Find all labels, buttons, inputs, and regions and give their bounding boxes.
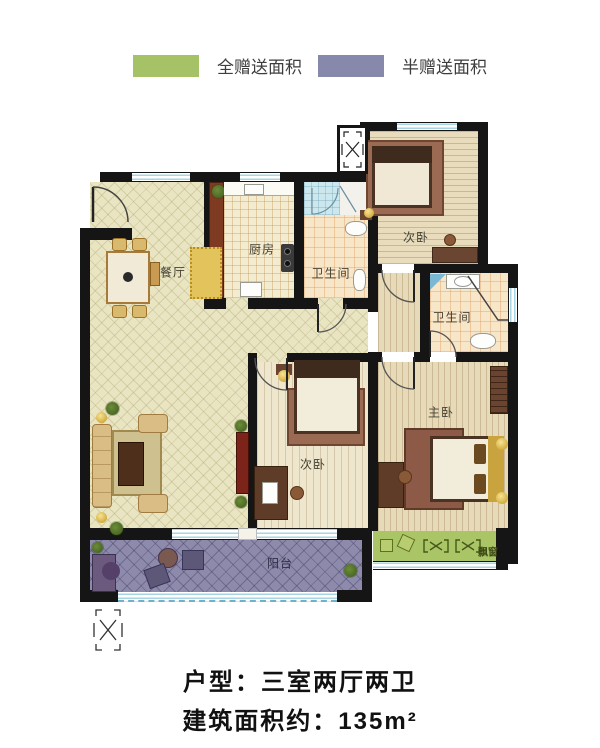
plant [344,564,357,577]
bay-pillow [380,539,393,552]
bedroom-top-desk [432,247,478,263]
bedroom-top-bed-headboard [372,146,432,163]
room-label-balcony: 阳台 [267,555,293,572]
master-pillow [474,474,486,494]
wall-bedroom-top-bottom-a [368,264,382,273]
legend-label-half-gift: 半赠送面积 [402,53,487,78]
window-bedroom-mid-balcony [257,528,337,540]
living-bookshelf [236,432,249,494]
window-dining [132,172,190,182]
wall-bedroom-top-right [478,122,488,273]
master-chair [398,470,412,484]
bay-window-glazing [373,561,498,570]
wall-master-top-b [414,352,430,362]
legend-swatch-purple [318,55,384,77]
wall-kitchen-right [294,182,304,309]
dining-chair [132,238,147,251]
bath2-toilet [470,333,496,349]
living-lamp [96,512,107,523]
bath1-shower-floor [304,182,340,215]
wall-balcony-corner-right [337,590,372,602]
balcony-floor [90,540,362,592]
dining-console [150,262,160,286]
sofa-single [138,494,168,513]
master-wardrobe [490,366,508,414]
coffee-table [118,442,144,486]
wall-master-top-a [368,352,382,362]
window-bath2 [508,288,518,322]
bath1-sink [353,269,366,291]
sofa-long [92,424,112,508]
room-label-bath1: 卫生间 [311,265,350,282]
bedroom-top-lamp [364,208,374,218]
living-lamp [96,412,107,423]
room-label-dining: 餐厅 [160,264,186,281]
kitchen-appliance [240,282,262,297]
layout-title: 户型：三室两厅两卫 [0,662,600,697]
hall-mat [190,247,222,299]
sofa-single [138,414,168,433]
bath1-toilet [345,221,367,236]
master-pillow [474,444,486,464]
window-bedroom-top [397,122,457,131]
wall-bath2-bottom [456,352,508,362]
dining-chair [132,305,147,318]
window-living-balcony [172,528,238,540]
master-corridor-floor [378,273,420,352]
stove-burner [284,260,291,267]
plant [106,402,119,415]
room-label-bath2: 卫生间 [432,309,471,326]
balcony-pot [102,562,120,580]
legend-item-full-gift: 全赠送面积 [133,53,302,78]
bedroom-top-chair [444,234,456,246]
kitchen-sink [244,184,264,195]
flue-shaft-bottom-icon [94,610,122,650]
wall-bath1-bottom-b [343,298,378,309]
room-label-kitchen: 厨房 [249,241,275,258]
legend-item-half-gift: 半赠送面积 [318,53,487,78]
room-label-bedroom-top: 次卧 [403,229,429,246]
legend-swatch-green [133,55,199,77]
wall-left-outer [80,228,90,602]
wall-living-bottom [80,528,172,540]
stove-burner [284,248,291,255]
plant [110,522,123,535]
wall-master-left [368,362,378,531]
bedroom-mid-bed-headboard [294,360,360,378]
window-kitchen [240,172,280,182]
wall-bedroom-top-bottom-b [414,264,478,273]
plant [92,542,103,553]
balcony-chair [182,550,204,570]
plant [235,420,247,432]
wall-kitchen-bottom-b [248,298,304,309]
master-wall-lamp [496,438,508,450]
bedroom-mid-lamp [278,370,290,382]
legend-label-full-gift: 全赠送面积 [217,53,302,78]
room-label-master: 主卧 [428,404,454,421]
room-label-bay-window: 飘窗 [478,544,498,559]
area-title: 建筑面积约：135m² [0,701,600,736]
dining-centerpiece [123,272,133,282]
floor-plan-page: { "legend": { "items": [ {"label": "全赠送面… [0,0,600,748]
balcony-railing [118,592,337,602]
wall-kitchen-bottom-a [204,298,226,309]
dining-chair [112,238,127,251]
bath2-basin [454,276,472,287]
wall-bath1-bottom-a [304,298,318,309]
master-desk [378,462,404,508]
dining-chair [112,305,127,318]
wall-bath2-left [420,273,430,362]
bedroom-mid-chair [290,486,304,500]
master-wall-lamp [496,492,508,504]
room-label-bedroom-mid: 次卧 [300,456,326,473]
bath2-corner-shelf [430,274,446,290]
bedroom-mid-laptop [262,482,278,504]
balcony-door-threshold [238,528,257,540]
plant [235,496,247,508]
